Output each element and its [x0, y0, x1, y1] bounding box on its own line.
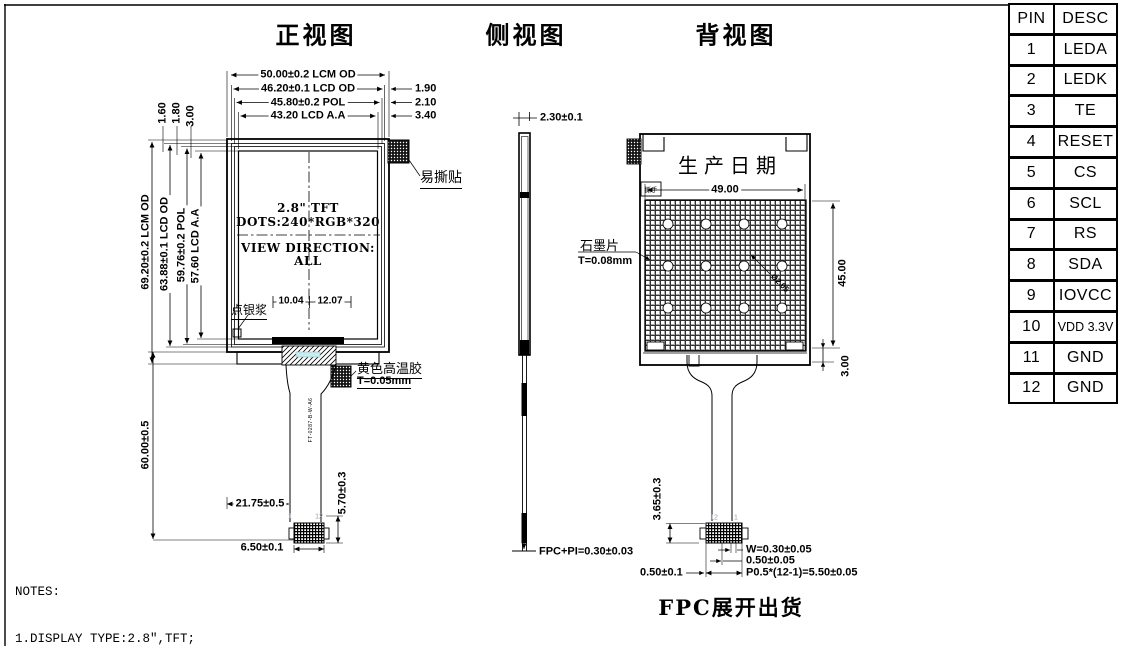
back-view-title: 背视图: [696, 16, 777, 51]
pin-table-row: 5CS: [1008, 158, 1118, 189]
production-date-label: 生产日期: [678, 150, 782, 179]
view-direction-text: VIEW DIRECTION:: [241, 241, 375, 255]
back-pin1-number: 1: [734, 515, 738, 522]
dim-edge: 0.50±0.1: [640, 568, 683, 579]
dim-gap-190: 1.90: [415, 84, 436, 95]
dim-back-width: 49.00: [709, 185, 741, 196]
pin-desc: VDD 3.3V: [1053, 311, 1118, 343]
tear-sticker-label: 易撕贴: [420, 167, 462, 189]
notes-block: NOTES: 1.DISPLAY TYPE:2.8″,TFT; 2.VIEWIN…: [15, 553, 315, 646]
dim-lcd-od-height: 63.88±0.1 LCD OD: [159, 195, 170, 293]
dim-connector-width: 6.50±0.1: [241, 543, 284, 554]
pin-desc: TE: [1053, 95, 1118, 127]
dim-gap-210: 2.10: [415, 97, 436, 108]
dim-total-height: 60.00±0.5: [141, 419, 152, 472]
notes-title: NOTES:: [15, 585, 315, 601]
dim-aa-width: 43.20 LCD A.A: [269, 111, 348, 122]
fpc-ship-title: FPC展开出货: [658, 592, 803, 622]
front-pin12-number: 12: [315, 514, 323, 521]
pin-desc: LEDK: [1053, 65, 1118, 97]
dim-gap-160: 1.60: [158, 102, 169, 123]
dim-connector-length: 5.70±0.3: [338, 472, 349, 515]
pin-number: 3: [1008, 95, 1055, 127]
dim-fpc-offset: 21.75±0.5: [234, 499, 287, 510]
pin-table-row: 2LEDK: [1008, 66, 1118, 97]
dim-gap-340: 3.40: [415, 111, 436, 122]
pin-number: 8: [1008, 249, 1055, 281]
pin-desc: IOVCC: [1053, 280, 1118, 312]
pin-desc: LEDA: [1053, 34, 1118, 66]
pin-number: 1: [1008, 34, 1055, 66]
dim-lcd-od-width: 46.20±0.1 LCD OD: [259, 84, 357, 95]
pin-table: PIN DESC 1LEDA 2LEDK 3TE 4RESET 5CS 6SCL…: [1008, 4, 1118, 404]
pin-number: 7: [1008, 219, 1055, 251]
front-view-outline: [227, 139, 409, 543]
drawing-sheet: 正视图 侧视图 背视图 FPC展开出货 50.00±0.2 LCM OD 46.…: [0, 0, 1140, 646]
pin-desc: RESET: [1053, 126, 1118, 158]
pin-number: 6: [1008, 188, 1055, 220]
dim-gap-180: 1.80: [172, 102, 183, 123]
pin-table-row: 1LEDA: [1008, 35, 1118, 66]
pin-number: 11: [1008, 342, 1055, 374]
pin-number: 9: [1008, 280, 1055, 312]
side-view-linework: [512, 112, 537, 551]
dim-pin-edge: 0.50±0.05: [746, 556, 795, 567]
graphite-thickness: T=0.08mm: [578, 255, 632, 267]
dim-lcm-od-width: 50.00±0.2 LCM OD: [258, 70, 357, 81]
view-direction-all-text: ALL: [294, 254, 322, 268]
pin-table-header-pin: PIN: [1008, 3, 1055, 35]
pin-number: 5: [1008, 157, 1055, 189]
tear-tab-label: 撕手: [645, 184, 658, 194]
dim-thickness: 2.30±0.1: [540, 113, 583, 124]
pin-desc: CS: [1053, 157, 1118, 189]
dim-fpc-left: 10.04: [276, 296, 305, 307]
pin-number: 12: [1008, 373, 1055, 405]
dim-gap-300: 3.00: [186, 105, 197, 126]
dim-stiffener: 3.65±0.3: [653, 478, 664, 521]
front-pin1-number: 1: [288, 514, 292, 521]
pin-desc: RS: [1053, 219, 1118, 251]
pin-table-row: 4RESET: [1008, 127, 1118, 158]
pin-table-row: 6SCL: [1008, 189, 1118, 220]
dim-fpc-thickness: FPC+PI=0.30±0.03: [539, 547, 633, 558]
pin-number: 2: [1008, 65, 1055, 97]
pin-table-row: 12GND: [1008, 374, 1118, 405]
dim-lcm-od-height: 69.20±0.2 LCM OD: [141, 192, 152, 291]
pin-table-row: 9IOVCC: [1008, 281, 1118, 312]
pin-table-row: 10VDD 3.3V: [1008, 312, 1118, 343]
dim-pol-height: 59.76±0.2 POL: [176, 206, 187, 285]
sheet-border: [4, 4, 1008, 646]
note-line: 1.DISPLAY TYPE:2.8″,TFT;: [15, 632, 315, 646]
pin-desc: SDA: [1053, 249, 1118, 281]
pin-number: 10: [1008, 311, 1055, 343]
panel-dots-text: DOTS:240*RGB*320: [236, 215, 380, 229]
pin-table-row: 7RS: [1008, 220, 1118, 251]
yellow-tape-thickness: T=0.05mm: [357, 375, 411, 389]
side-view-title: 侧视图: [486, 16, 567, 51]
pin-table-header-desc: DESC: [1053, 3, 1118, 35]
front-view-title: 正视图: [276, 16, 357, 51]
pin-table-row: 8SDA: [1008, 250, 1118, 281]
pin-desc: GND: [1053, 342, 1118, 374]
dim-pol-width: 45.80±0.2 POL: [269, 97, 348, 108]
dim-aa-height: 57.60 LCD A.A: [190, 206, 201, 285]
pin-table-header-row: PIN DESC: [1008, 4, 1118, 35]
silver-dot-label: 点银浆: [231, 301, 267, 320]
dim-fpc-right: 12.07: [315, 296, 344, 307]
pin-table-row: 11GND: [1008, 343, 1118, 374]
dim-back-bottom: 3.00: [841, 355, 852, 376]
pin-desc: GND: [1053, 373, 1118, 405]
dim-back-height: 45.00: [838, 259, 849, 287]
pin-number: 4: [1008, 126, 1055, 158]
pin-desc: SCL: [1053, 188, 1118, 220]
pin-table-row: 3TE: [1008, 96, 1118, 127]
back-pin12-number: 12: [710, 515, 718, 522]
graphite-label: 石墨片: [580, 235, 619, 254]
panel-size-text: 2.8" TFT: [277, 201, 339, 215]
fpc-marking-text: FT-0287-B-W-A6: [308, 398, 314, 443]
dim-pitch-total: P0.5*(12-1)=5.50±0.05: [746, 568, 858, 579]
